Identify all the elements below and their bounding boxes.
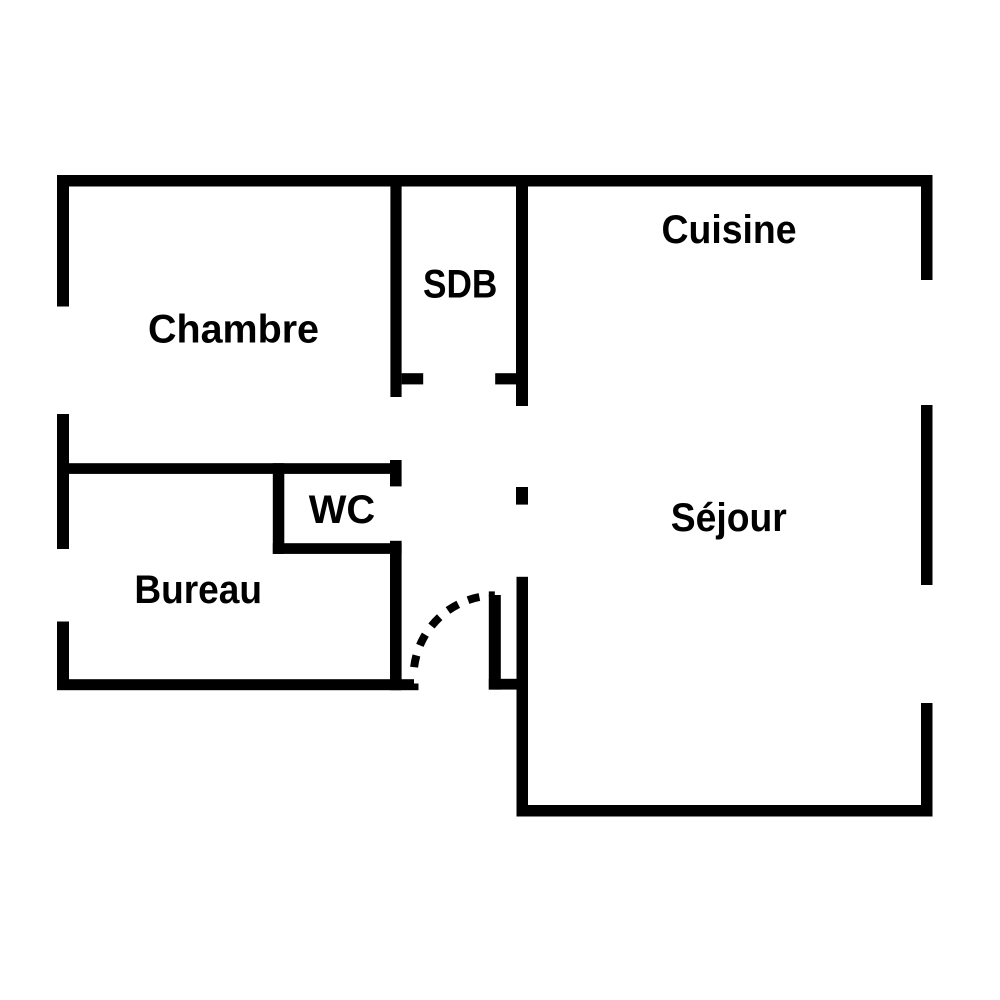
svg-text:WC: WC: [309, 488, 375, 532]
svg-text:SDB: SDB: [423, 263, 497, 307]
svg-text:Bureau: Bureau: [134, 568, 262, 612]
svg-text:Chambre: Chambre: [148, 308, 319, 352]
svg-text:Séjour: Séjour: [671, 496, 787, 540]
svg-text:Cuisine: Cuisine: [662, 208, 797, 252]
